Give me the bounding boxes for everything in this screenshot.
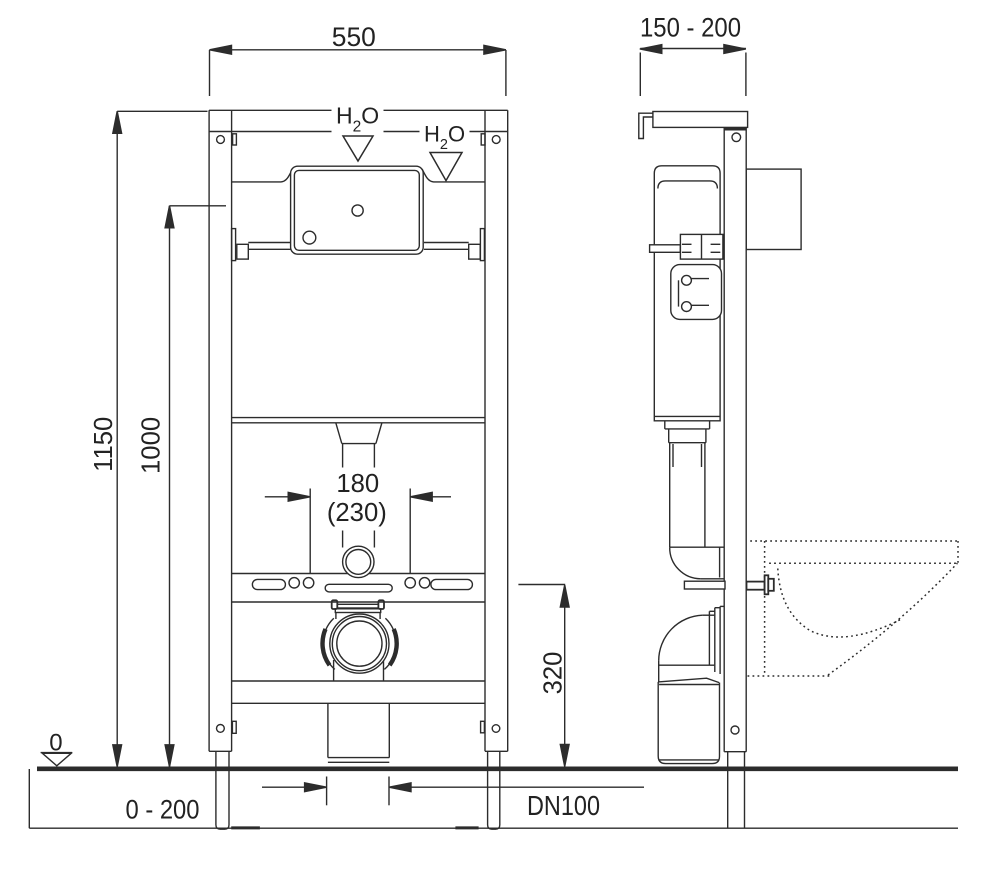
svg-text:0 - 200: 0 - 200 — [126, 795, 200, 825]
svg-text:0: 0 — [49, 730, 62, 757]
svg-text:320: 320 — [540, 652, 568, 695]
svg-text:180: 180 — [336, 470, 379, 498]
svg-text:550: 550 — [332, 22, 376, 52]
svg-text:1150: 1150 — [90, 417, 118, 472]
svg-text:(230): (230) — [327, 499, 387, 527]
svg-text:150 - 200: 150 - 200 — [640, 13, 741, 43]
svg-text:1000: 1000 — [138, 417, 166, 474]
svg-text:DN100: DN100 — [527, 790, 600, 821]
